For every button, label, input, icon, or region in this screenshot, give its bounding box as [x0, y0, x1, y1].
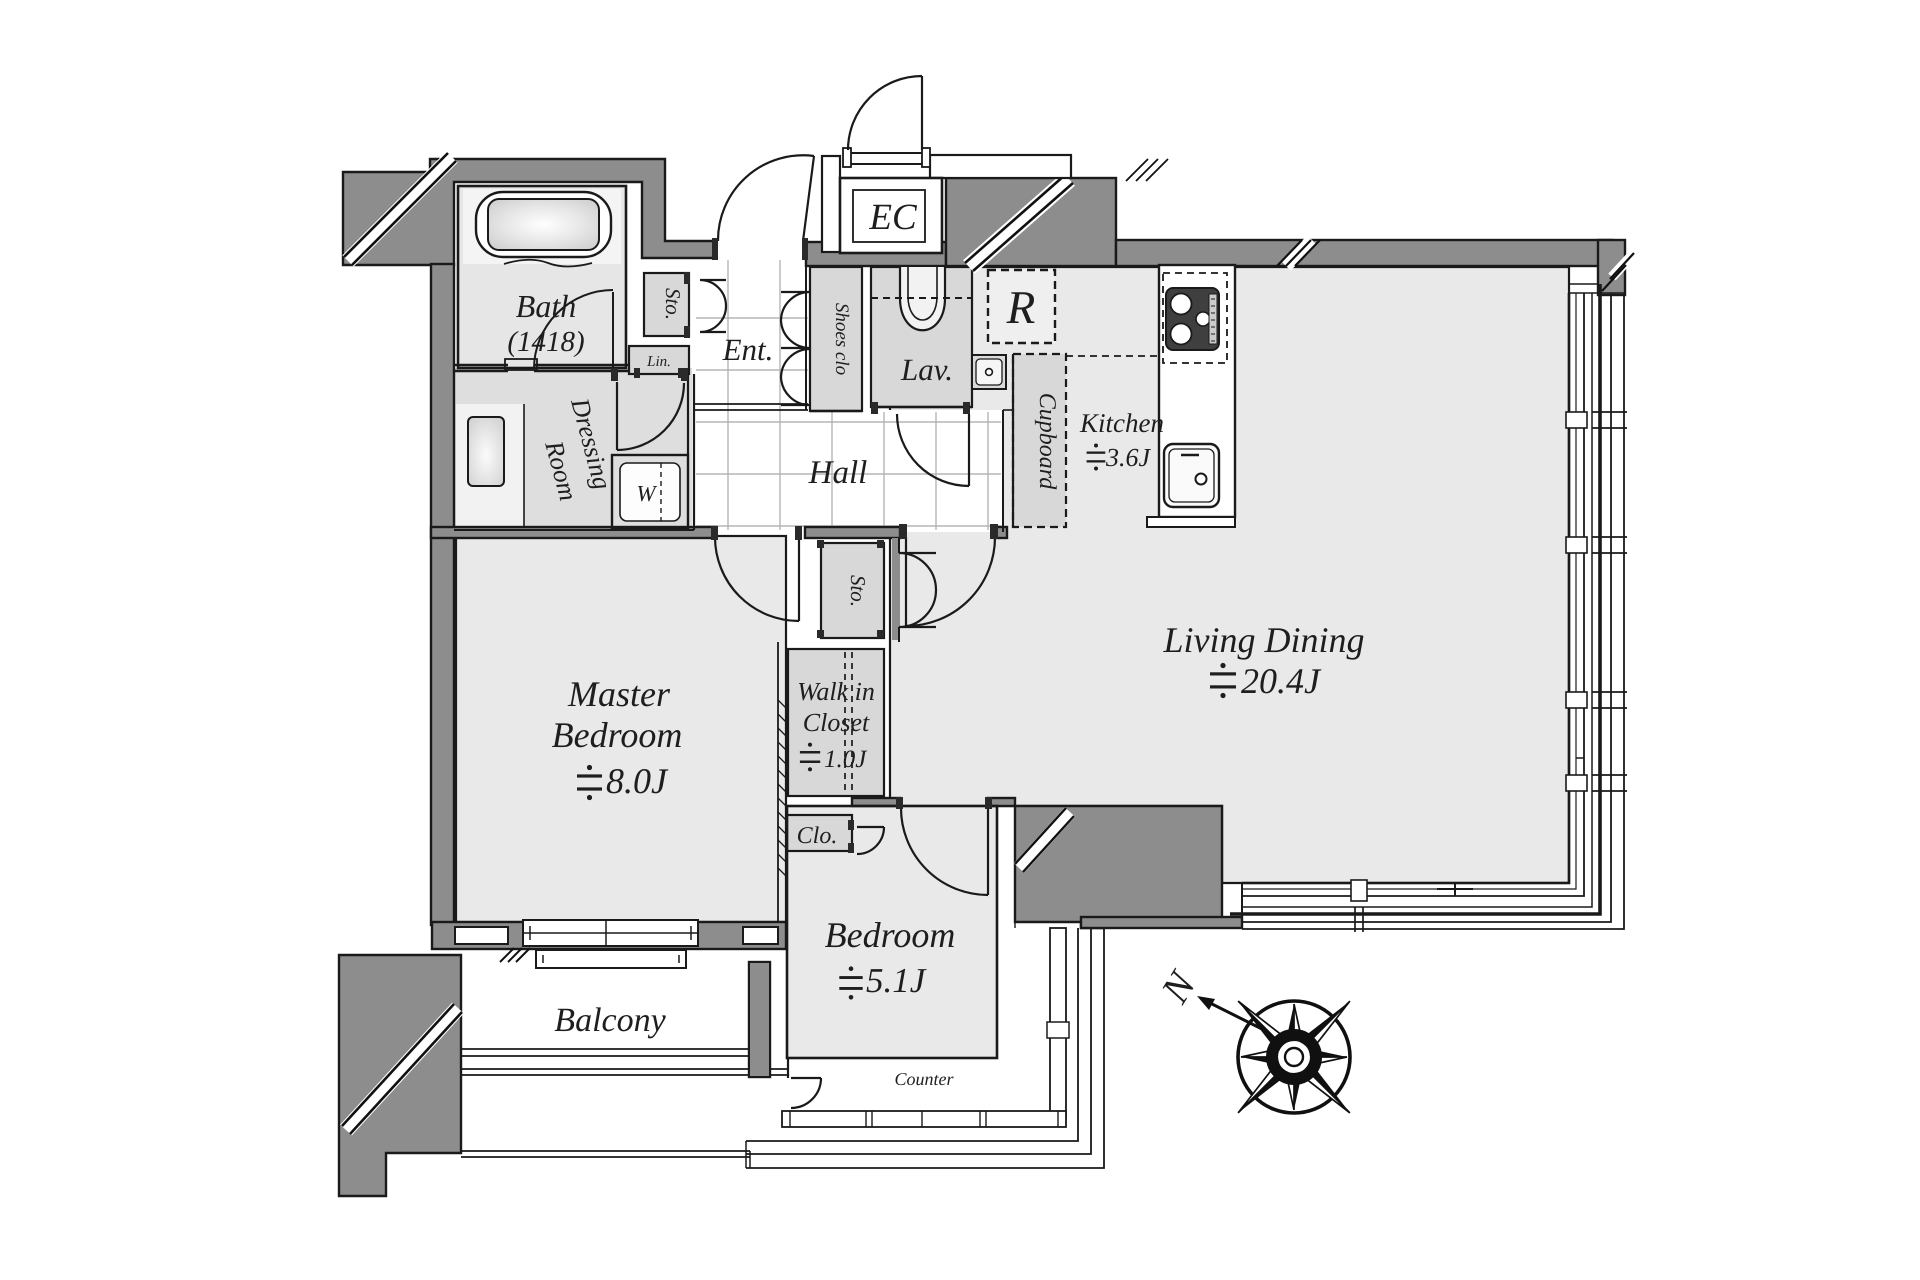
svg-text:8.0J: 8.0J — [606, 761, 669, 801]
svg-text:Bedroom: Bedroom — [552, 715, 683, 755]
svg-text:Cupboard: Cupboard — [1034, 393, 1060, 490]
svg-text:5.1J: 5.1J — [866, 961, 927, 1000]
svg-text:Closet: Closet — [803, 708, 870, 737]
svg-text:Balcony: Balcony — [554, 1002, 666, 1039]
svg-text:20.4J: 20.4J — [1241, 661, 1322, 701]
svg-text:Kitchen: Kitchen — [1079, 408, 1164, 438]
svg-text:Walk in: Walk in — [797, 677, 875, 706]
svg-text:EC: EC — [868, 197, 918, 238]
svg-text:W: W — [636, 481, 657, 506]
svg-text:(1418): (1418) — [507, 326, 584, 358]
svg-text:Master: Master — [567, 674, 671, 714]
svg-text:Bath: Bath — [516, 288, 576, 324]
svg-text:Lav.: Lav. — [900, 352, 953, 387]
svg-text:R: R — [1006, 282, 1036, 334]
svg-text:Bedroom: Bedroom — [825, 915, 956, 955]
svg-text:Sto.: Sto. — [661, 288, 685, 320]
svg-text:Lin.: Lin. — [646, 354, 671, 370]
svg-text:Sto.: Sto. — [846, 575, 870, 607]
svg-text:3.6J: 3.6J — [1105, 443, 1152, 472]
svg-text:Living Dining: Living Dining — [1162, 620, 1364, 660]
svg-text:Hall: Hall — [808, 455, 868, 491]
svg-text:Ent.: Ent. — [722, 332, 774, 367]
svg-text:Counter: Counter — [894, 1069, 954, 1089]
svg-text:Clo.: Clo. — [797, 823, 838, 849]
svg-text:1.0J: 1.0J — [824, 746, 868, 773]
svg-text:Shoes clo: Shoes clo — [831, 303, 852, 375]
